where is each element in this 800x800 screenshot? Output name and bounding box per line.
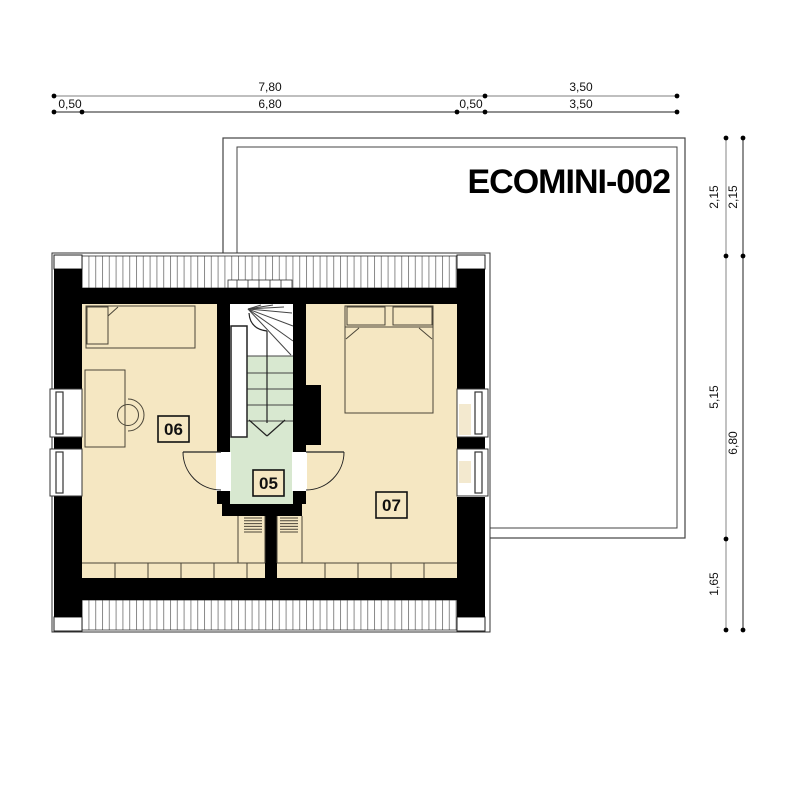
room-label-07: 07 xyxy=(376,492,407,518)
partition-wall-center xyxy=(265,516,277,578)
wall-gable-left-lower xyxy=(54,495,82,617)
room-label-05: 05 xyxy=(253,470,284,496)
wall-gable-right-lower xyxy=(457,497,485,617)
floor-plan-drawing: ECOMINI-002 7,80 3,50 0,50 6,80 0,50 3,5… xyxy=(0,0,800,800)
eaves-hatch-bottom xyxy=(82,600,457,630)
window-sill xyxy=(459,461,471,483)
dim-label: 3,50 xyxy=(569,80,593,94)
room-number: 05 xyxy=(259,474,278,493)
wall-gable-left-mid xyxy=(54,437,82,450)
wall-gable-right-upper xyxy=(457,269,485,389)
dimension-top-total: 7,80 3,50 xyxy=(52,80,680,98)
door-opening xyxy=(216,452,231,491)
room-number: 07 xyxy=(382,496,401,515)
window-right-1 xyxy=(457,389,488,437)
stair-upper-flight-band xyxy=(228,280,292,288)
window-sill xyxy=(459,404,471,435)
room-number: 06 xyxy=(164,420,183,439)
dim-label: 0,50 xyxy=(459,97,483,111)
door-opening xyxy=(292,452,307,491)
window-sash xyxy=(56,392,63,434)
window-right-2 xyxy=(457,449,488,496)
plan-title: ECOMINI-002 xyxy=(468,163,671,201)
window-left-1 xyxy=(50,389,82,437)
corner-block-top-left xyxy=(54,255,82,269)
wall-bottom xyxy=(82,578,457,600)
dim-label: 5,15 xyxy=(707,385,721,409)
wall-gable-left-upper xyxy=(54,269,82,389)
room-label-06: 06 xyxy=(158,416,189,442)
window-sash xyxy=(475,392,482,434)
dim-label: 6,80 xyxy=(258,97,282,111)
window-sash xyxy=(56,452,63,493)
corner-block-bottom-right xyxy=(457,617,485,631)
dim-label: 3,50 xyxy=(569,97,593,111)
stair-railing xyxy=(231,326,247,437)
wall-top xyxy=(82,288,457,304)
dimension-top-segments: 0,50 6,80 0,50 3,50 xyxy=(52,97,680,114)
attic-plan: 06 05 07 xyxy=(50,253,490,632)
window-left-2 xyxy=(50,449,82,496)
wall-gable-right-mid xyxy=(457,437,485,449)
landing-wall-bottom xyxy=(222,504,302,516)
wall-pier xyxy=(306,385,321,445)
dim-label: 2,15 xyxy=(726,185,740,209)
window-sash xyxy=(475,452,482,493)
dim-label: 2,15 xyxy=(707,185,721,209)
dim-label: 1,65 xyxy=(707,572,721,596)
corner-block-top-right xyxy=(457,255,485,269)
dim-label: 0,50 xyxy=(58,97,82,111)
dim-label: 6,80 xyxy=(726,431,740,455)
dim-label: 7,80 xyxy=(258,80,282,94)
corner-block-bottom-left xyxy=(54,617,82,631)
dimension-right-total: 2,15 6,80 xyxy=(726,136,745,633)
dimension-right-segments: 2,15 5,15 1,65 xyxy=(707,136,728,633)
